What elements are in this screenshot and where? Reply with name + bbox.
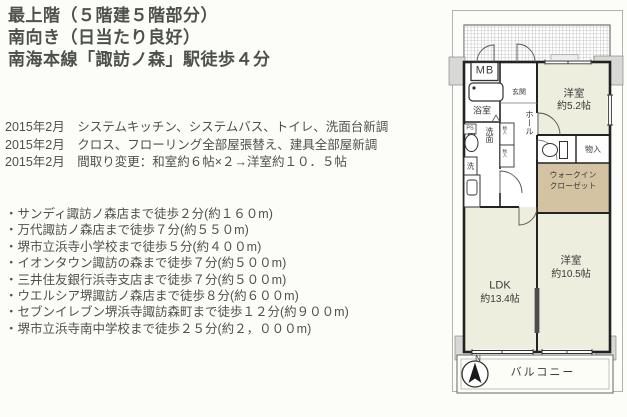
- list-item: ・堺市立浜寺小学校まで徒歩５分(約４００m): [5, 239, 349, 255]
- headline-block: 最上階（５階建５階部分） 南向き（日当たり良好） 南海本線「諏訪ノ森」駅徒歩４分: [8, 5, 271, 71]
- headline-line: 最上階（５階建５階部分）: [8, 5, 271, 27]
- list-item: ・三井住友銀行浜寺支店まで徒歩７分(約５００m): [5, 272, 349, 288]
- floor-plan: MB 浴室 PS 洗面 洗 玄関 ホール 物入 物入 洋室 約5.2帖 物入 ウ…: [447, 3, 627, 405]
- label-pipe-space: PS: [466, 126, 473, 133]
- list-item: ・堺市立浜寺南中学校まで徒歩２５分(約２，０００m): [5, 321, 349, 337]
- label-ldk-size: 約13.4帖: [480, 294, 519, 306]
- label-bedroom1-name: 洋室: [564, 88, 585, 101]
- real-estate-flyer: 最上階（５階建５階部分） 南向き（日当たり良好） 南海本線「諏訪ノ森」駅徒歩４分…: [0, 0, 627, 417]
- label-entrance: 玄関: [512, 89, 526, 97]
- bathtub-icon: [469, 83, 503, 101]
- renovation-line: 2015年2月 システムキッチン、システムバス、トイレ、洗面台新調: [5, 119, 388, 137]
- label-hall: ホール: [525, 110, 534, 136]
- sliding-door: [535, 288, 540, 333]
- label-bathroom: 浴室: [473, 106, 491, 117]
- label-bedroom1-size: 約5.2帖: [557, 101, 591, 113]
- renovation-line: 2015年2月 クロス、フローリング全部屋張替え、建具全部屋新調: [5, 137, 388, 155]
- label-storage: 物入: [585, 145, 601, 155]
- label-north: N: [475, 354, 481, 364]
- corridor-hatch: [464, 25, 610, 62]
- toilet-tank: [560, 142, 568, 159]
- list-item: ・イオンタウン諏訪の森まで徒歩７分(約５００m): [5, 255, 349, 271]
- nearby-facilities-list: ・サンディ諏訪ノ森店まで徒歩２分(約１６０m) ・万代諏訪ノ森店まで徒歩７分(約…: [5, 206, 349, 337]
- list-item: ・ウエルシア堺諏訪ノ森店まで徒歩８分(約６００m): [5, 288, 349, 304]
- label-bedroom2-size: 約10.5帖: [551, 269, 590, 281]
- toilet-bowl-icon: [543, 144, 558, 157]
- label-laundry: 洗: [467, 162, 475, 171]
- floor-plan-drawing: [447, 3, 627, 405]
- headline-line: 南向き（日当たり良好）: [8, 27, 271, 49]
- renovation-block: 2015年2月 システムキッチン、システムバス、トイレ、洗面台新調 2015年2…: [5, 119, 388, 172]
- label-ldk-name: LDK: [489, 279, 510, 292]
- bedroom2-fill: [537, 213, 610, 352]
- label-bedroom2-name: 洋室: [561, 255, 582, 268]
- washbasin-icon: [465, 135, 478, 152]
- label-storage-small-bottom: 物入: [503, 149, 507, 158]
- label-wic-line2: クローゼット: [550, 181, 597, 190]
- list-item: ・サンディ諏訪ノ森店まで徒歩２分(約１６０m): [5, 206, 349, 222]
- label-balcony: バルコニー: [511, 366, 576, 379]
- label-washroom: 洗面: [485, 127, 493, 143]
- renovation-line: 2015年2月 間取り変更：和室約６帖×２→洋室約１０．５帖: [5, 154, 388, 172]
- label-meter-box: MB: [476, 64, 495, 77]
- list-item: ・万代諏訪ノ森店まで徒歩７分(約５５０m): [5, 222, 349, 238]
- label-storage-small-top: 物入: [503, 126, 507, 135]
- kitchen-sink-icon: [467, 180, 477, 195]
- headline-line: 南海本線「諏訪ノ森」駅徒歩４分: [8, 49, 271, 71]
- list-item: ・セブンイレブン堺浜寺諏訪森町まで徒歩１２分(約９００m): [5, 304, 349, 320]
- label-wic-line1: ウォークイン: [550, 170, 597, 179]
